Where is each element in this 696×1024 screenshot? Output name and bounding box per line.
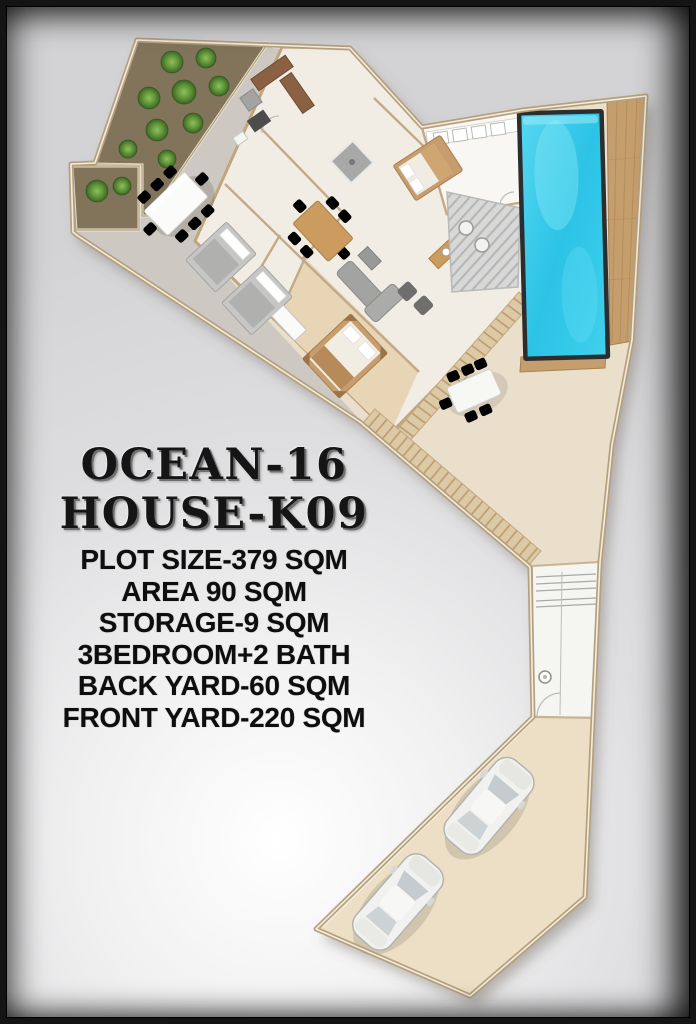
poster: OCEAN-16 HOUSE-K09 PLOT SIZE-379 SQM ARE…	[0, 0, 696, 1024]
spec-plot-size: PLOT SIZE-379 SQM	[28, 544, 400, 576]
spec-rooms: 3BEDROOM+2 BATH	[28, 639, 400, 671]
project-title-line2: HOUSE-K09	[28, 490, 400, 539]
spec-area: AREA 90 SQM	[28, 576, 400, 608]
spec-back-yard: BACK YARD-60 SQM	[28, 670, 400, 702]
storage-corridor	[532, 562, 600, 718]
specs-block: PLOT SIZE-379 SQM AREA 90 SQM STORAGE-9 …	[28, 544, 400, 733]
project-title-line1: OCEAN-16	[28, 441, 400, 490]
spec-storage: STORAGE-9 SQM	[28, 607, 400, 639]
title-block: OCEAN-16 HOUSE-K09	[28, 441, 400, 539]
swimming-pool	[517, 109, 611, 361]
spec-front-yard: FRONT YARD-220 SQM	[28, 702, 400, 734]
deck-stool	[475, 238, 489, 252]
entry-deck	[447, 192, 520, 292]
deck-stool	[459, 221, 473, 235]
